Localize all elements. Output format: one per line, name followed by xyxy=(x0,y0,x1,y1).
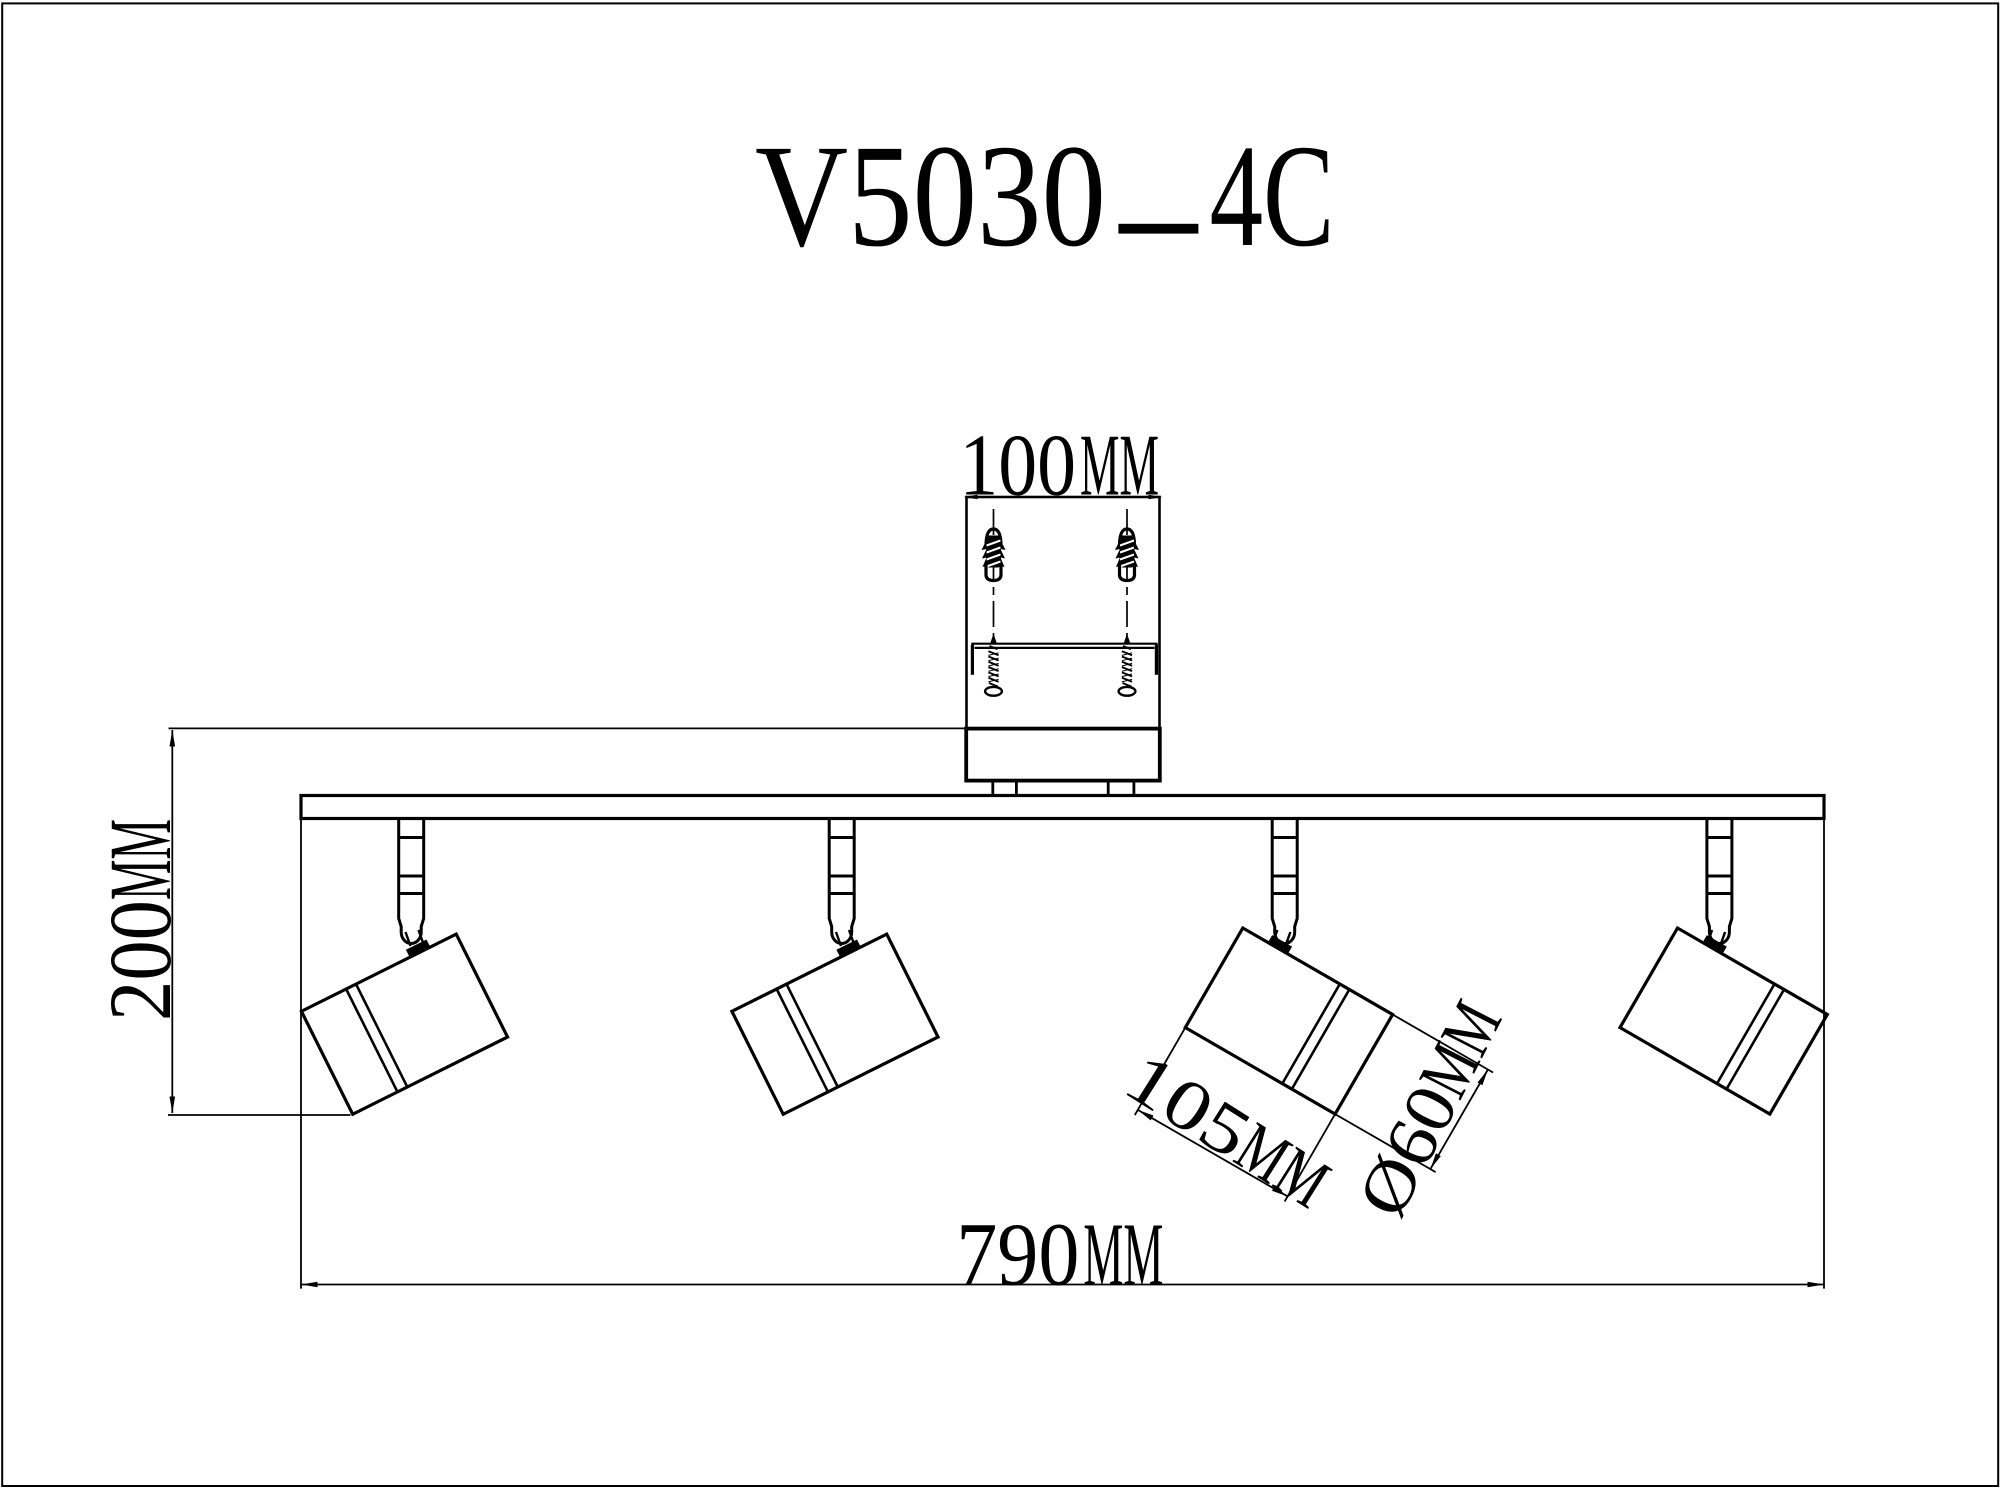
svg-text:V5030: V5030 xyxy=(755,114,1106,277)
svg-text:200: 200 xyxy=(92,900,190,1021)
svg-text:MM: MM xyxy=(1083,1205,1163,1304)
svg-text:4C: 4C xyxy=(1210,114,1335,277)
svg-text:790: 790 xyxy=(956,1205,1079,1304)
svg-text:MM: MM xyxy=(1080,416,1159,514)
svg-text:MM: MM xyxy=(92,819,190,900)
svg-text:100: 100 xyxy=(959,416,1076,514)
